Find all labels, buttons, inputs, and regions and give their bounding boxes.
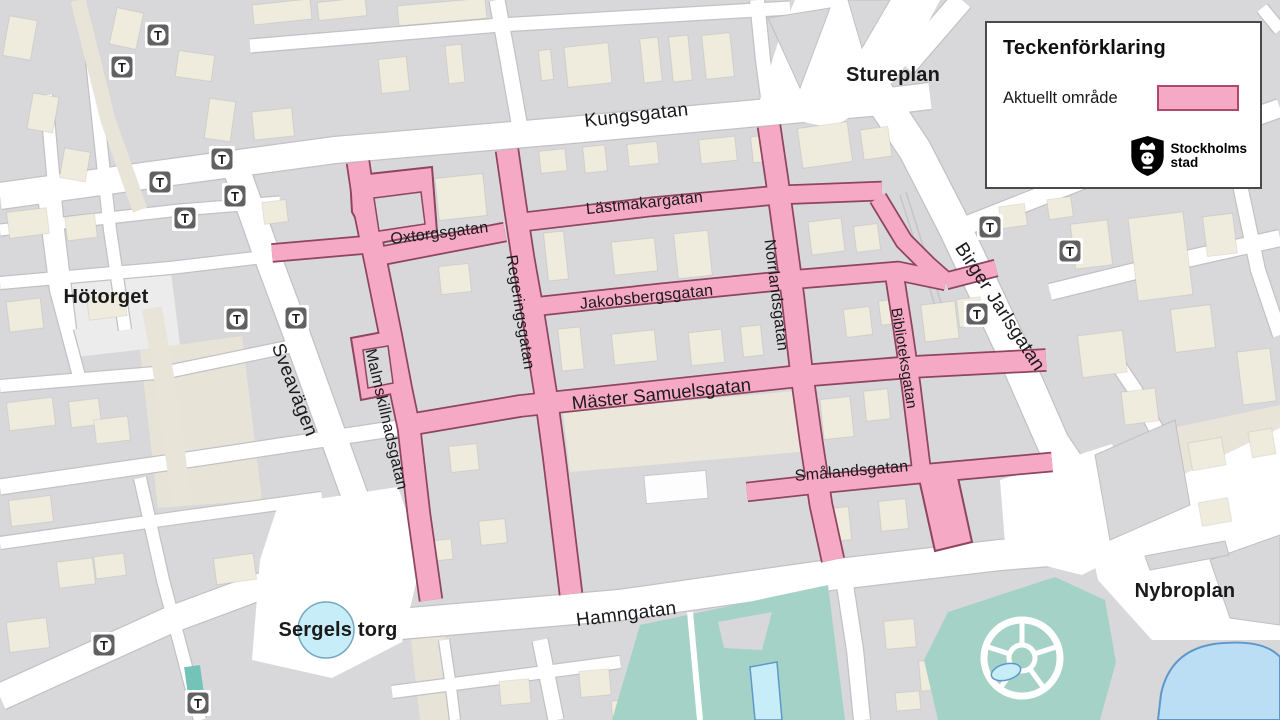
building (1198, 498, 1232, 527)
building (449, 444, 480, 473)
building (94, 416, 131, 444)
building (884, 619, 916, 650)
place-label-nybroplan: Nybroplan (1135, 580, 1236, 602)
metro-symbol: T (156, 175, 164, 190)
metro-icon: T (172, 205, 198, 231)
building (879, 499, 909, 532)
building (688, 329, 724, 365)
building (479, 519, 507, 546)
building (3, 16, 38, 60)
metro-icon: T (209, 146, 235, 172)
metro-symbol: T (154, 28, 162, 43)
building (94, 553, 126, 578)
metro-icon: T (224, 306, 250, 332)
building (27, 93, 59, 133)
building (854, 224, 881, 253)
building (538, 49, 553, 80)
building (499, 679, 531, 706)
street (540, 640, 556, 720)
metro-symbol: T (1066, 244, 1074, 259)
metro-symbol: T (973, 307, 981, 322)
building (583, 145, 608, 173)
building (57, 558, 96, 588)
building (317, 0, 367, 20)
building (1171, 305, 1216, 353)
metro-icon: T (109, 54, 135, 80)
metro-icon: T (222, 183, 248, 209)
metro-symbol: T (194, 696, 202, 711)
building (921, 301, 959, 342)
logo-line2: stad (1170, 156, 1247, 170)
building (611, 330, 657, 365)
building (445, 44, 465, 83)
metro-icon: T (145, 22, 171, 48)
building (627, 141, 659, 166)
metro-icon: T (91, 632, 117, 658)
stockholm-logo-text: Stockholms stad (1170, 142, 1247, 170)
metro-icon: T (185, 690, 211, 716)
building (213, 553, 256, 584)
logo-line1: Stockholms (1170, 142, 1247, 156)
legend-item-label: Aktuellt område (1003, 89, 1118, 108)
metro-icon: T (147, 169, 173, 195)
stockholm-shield-icon (1131, 136, 1164, 176)
building (1237, 348, 1276, 405)
building (640, 37, 663, 83)
building (439, 264, 472, 295)
building (6, 298, 43, 332)
building (1248, 428, 1276, 458)
building (252, 108, 295, 140)
building (1203, 213, 1238, 256)
building (579, 669, 611, 698)
building (1188, 437, 1226, 470)
building (699, 136, 737, 164)
street (1262, 8, 1280, 30)
street (845, 585, 862, 720)
building (435, 174, 487, 221)
building (808, 218, 845, 255)
building (820, 397, 854, 440)
building (740, 325, 763, 357)
building (843, 307, 872, 338)
place-label-hotorget: Hötorget (64, 286, 149, 308)
metro-icon: T (283, 305, 309, 331)
metro-symbol: T (233, 312, 241, 327)
building (539, 149, 567, 174)
building (644, 470, 708, 503)
metro-icon: T (1057, 238, 1083, 264)
building (1078, 330, 1128, 377)
building (9, 496, 54, 527)
building (378, 57, 409, 94)
park-pond (750, 662, 782, 720)
stockholm-stad-logo: Stockholms stad (1131, 136, 1247, 176)
building (6, 397, 55, 430)
building (895, 691, 920, 711)
street (1240, 185, 1280, 335)
building (611, 238, 657, 275)
metro-symbol: T (181, 211, 189, 226)
building (109, 8, 143, 50)
place-label-stureplan: Stureplan (846, 64, 940, 86)
building (1128, 212, 1193, 301)
metro-symbol: T (118, 60, 126, 75)
building (674, 230, 713, 278)
building (175, 51, 214, 82)
building (1121, 388, 1159, 425)
legend: Teckenförklaring Aktuellt område Stockho… (985, 21, 1262, 189)
building (544, 231, 569, 281)
highlight-street (272, 245, 364, 253)
legend-title: Teckenförklaring (1003, 37, 1166, 60)
building (252, 0, 312, 25)
building (60, 148, 91, 182)
building (65, 213, 98, 240)
highlight-island (374, 192, 425, 231)
building (1047, 196, 1074, 219)
building (7, 208, 50, 239)
building (6, 618, 49, 653)
metro-symbol: T (231, 189, 239, 204)
place-label-sergels-torg: Sergels torg (278, 619, 397, 641)
metro-symbol: T (218, 152, 226, 167)
building (558, 327, 584, 371)
building (797, 122, 852, 169)
building (669, 35, 693, 82)
metro-symbol: T (986, 220, 994, 235)
building (564, 43, 612, 87)
building (860, 126, 892, 160)
building (262, 200, 289, 225)
building (204, 98, 235, 141)
metro-symbol: T (100, 638, 108, 653)
building (702, 33, 734, 80)
building (863, 389, 890, 421)
metro-icon: T (977, 214, 1003, 240)
metro-symbol: T (292, 311, 300, 326)
water-nybroviken (1158, 643, 1280, 720)
legend-swatch-current-area (1157, 85, 1239, 111)
